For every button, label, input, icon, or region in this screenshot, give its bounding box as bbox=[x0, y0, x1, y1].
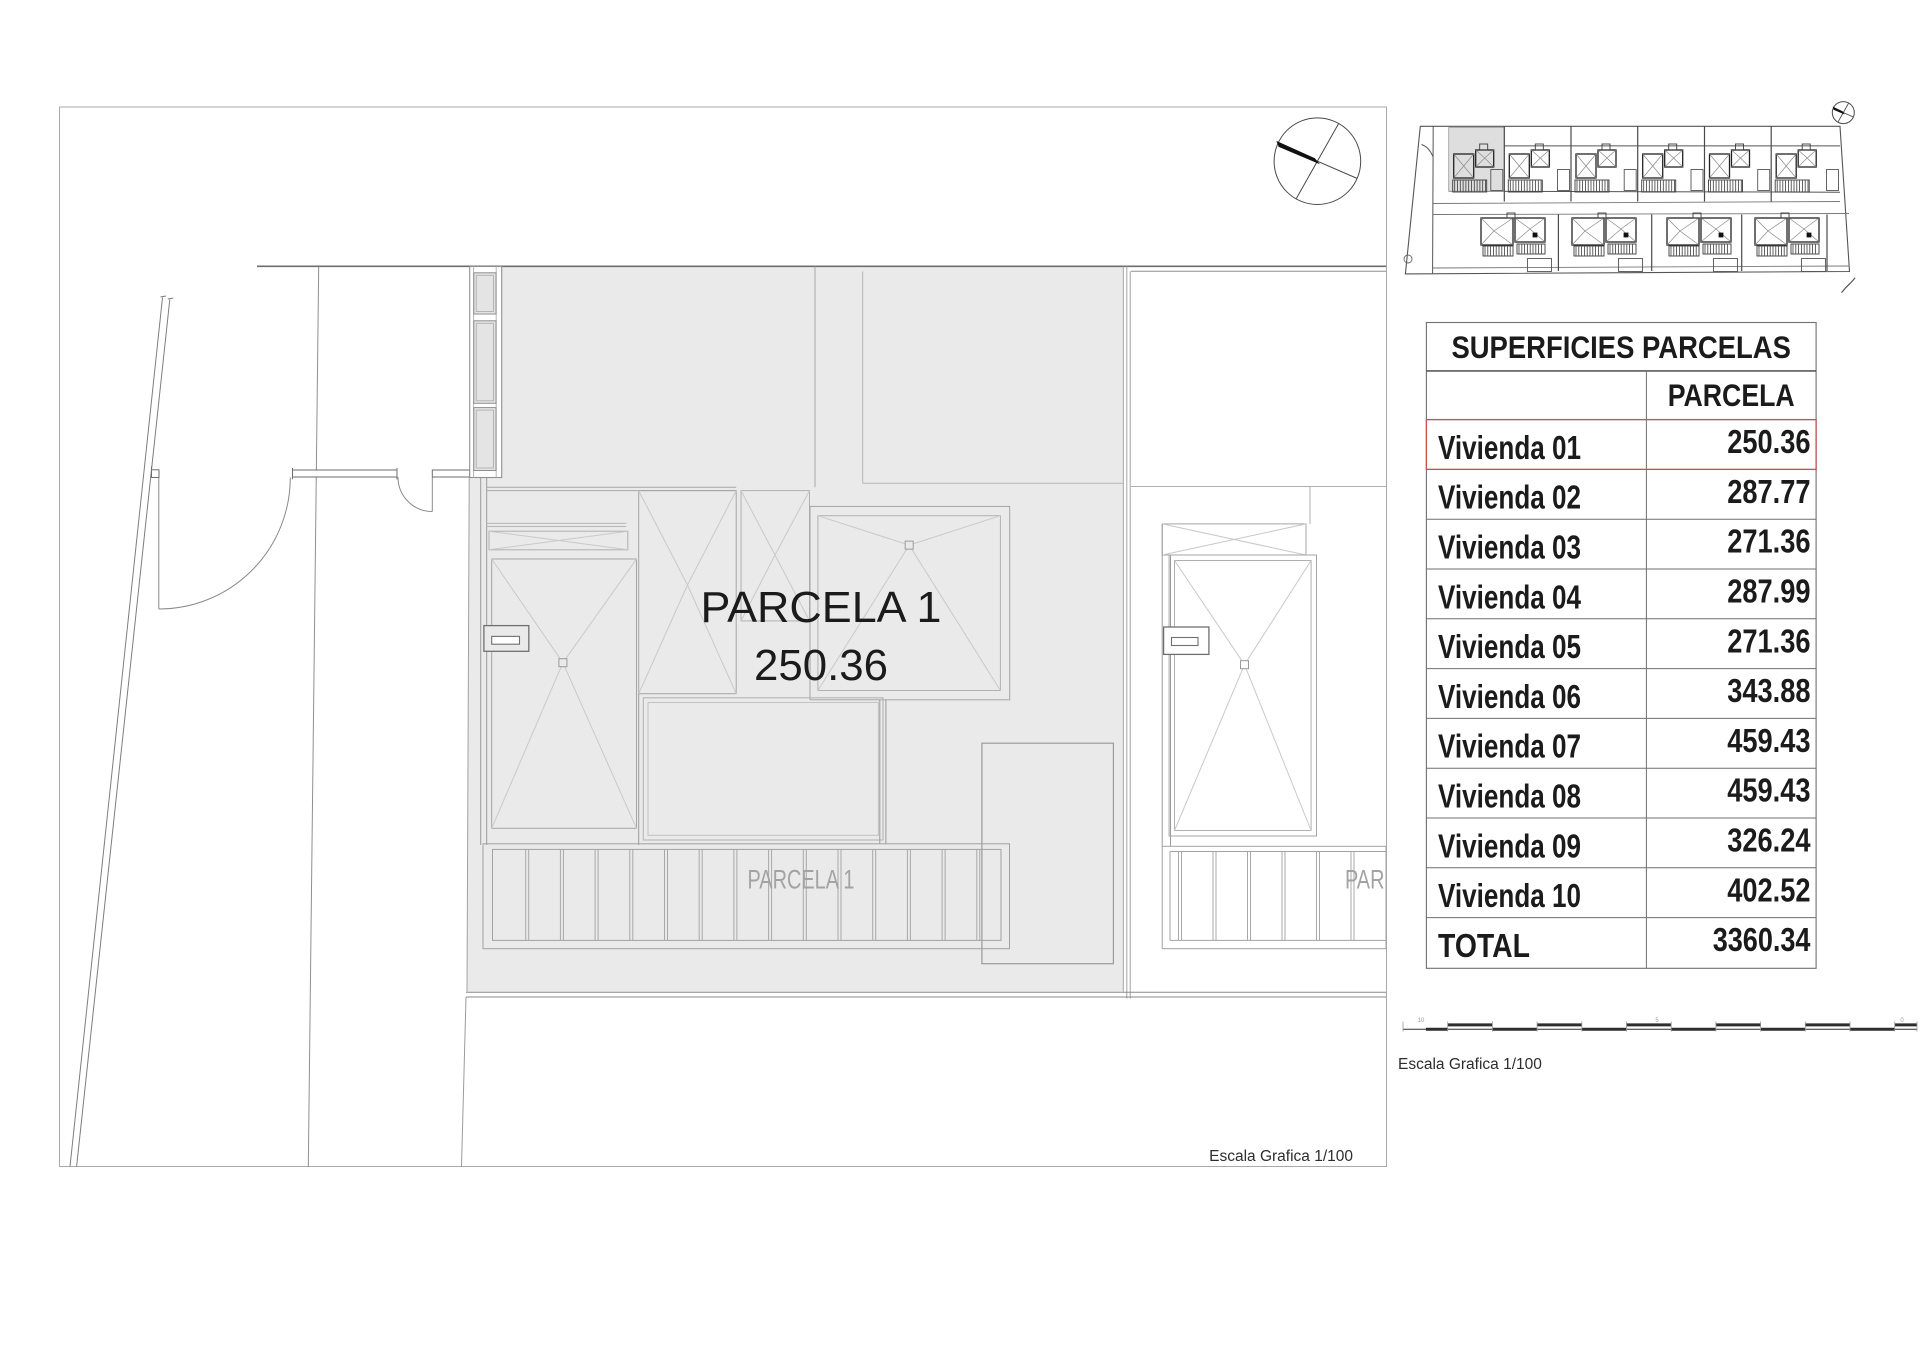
svg-text:Vivienda 03: Vivienda 03 bbox=[1438, 529, 1581, 566]
svg-text:287.99: 287.99 bbox=[1727, 573, 1810, 610]
svg-text:459.43: 459.43 bbox=[1727, 772, 1810, 809]
svg-text:10: 10 bbox=[1418, 1018, 1425, 1024]
svg-text:402.52: 402.52 bbox=[1727, 871, 1810, 908]
svg-text:SUPERFICIES PARCELAS: SUPERFICIES PARCELAS bbox=[1451, 329, 1791, 365]
svg-text:3360.34: 3360.34 bbox=[1713, 921, 1811, 958]
svg-text:Vivienda 01: Vivienda 01 bbox=[1438, 429, 1581, 466]
svg-text:PARCELA 1: PARCELA 1 bbox=[701, 583, 942, 632]
svg-text:250.36: 250.36 bbox=[754, 641, 888, 690]
svg-text:Vivienda 05: Vivienda 05 bbox=[1438, 628, 1581, 665]
svg-text:271.36: 271.36 bbox=[1727, 622, 1810, 659]
svg-text:TOTAL: TOTAL bbox=[1438, 927, 1530, 964]
svg-text:287.77: 287.77 bbox=[1727, 473, 1810, 510]
svg-text:PARCELA: PARCELA bbox=[1668, 377, 1795, 413]
svg-text:Vivienda 10: Vivienda 10 bbox=[1438, 877, 1581, 914]
svg-text:250.36: 250.36 bbox=[1727, 423, 1810, 460]
svg-text:Vivienda 09: Vivienda 09 bbox=[1438, 827, 1581, 864]
svg-text:Vivienda 04: Vivienda 04 bbox=[1438, 578, 1581, 615]
svg-text:326.24: 326.24 bbox=[1727, 822, 1811, 859]
svg-text:Escala Grafica 1/100: Escala Grafica 1/100 bbox=[1209, 1148, 1353, 1165]
svg-text:343.88: 343.88 bbox=[1727, 672, 1810, 709]
svg-text:Vivienda 08: Vivienda 08 bbox=[1438, 778, 1581, 815]
svg-text:PARCELA 1: PARCELA 1 bbox=[748, 865, 855, 895]
svg-text:Vivienda 02: Vivienda 02 bbox=[1438, 479, 1581, 516]
svg-text:Vivienda 06: Vivienda 06 bbox=[1438, 678, 1581, 715]
svg-text:Escala Grafica 1/100: Escala Grafica 1/100 bbox=[1398, 1056, 1542, 1073]
svg-text:271.36: 271.36 bbox=[1727, 523, 1810, 560]
svg-text:459.43: 459.43 bbox=[1727, 722, 1810, 759]
svg-text:Vivienda 07: Vivienda 07 bbox=[1438, 728, 1581, 765]
